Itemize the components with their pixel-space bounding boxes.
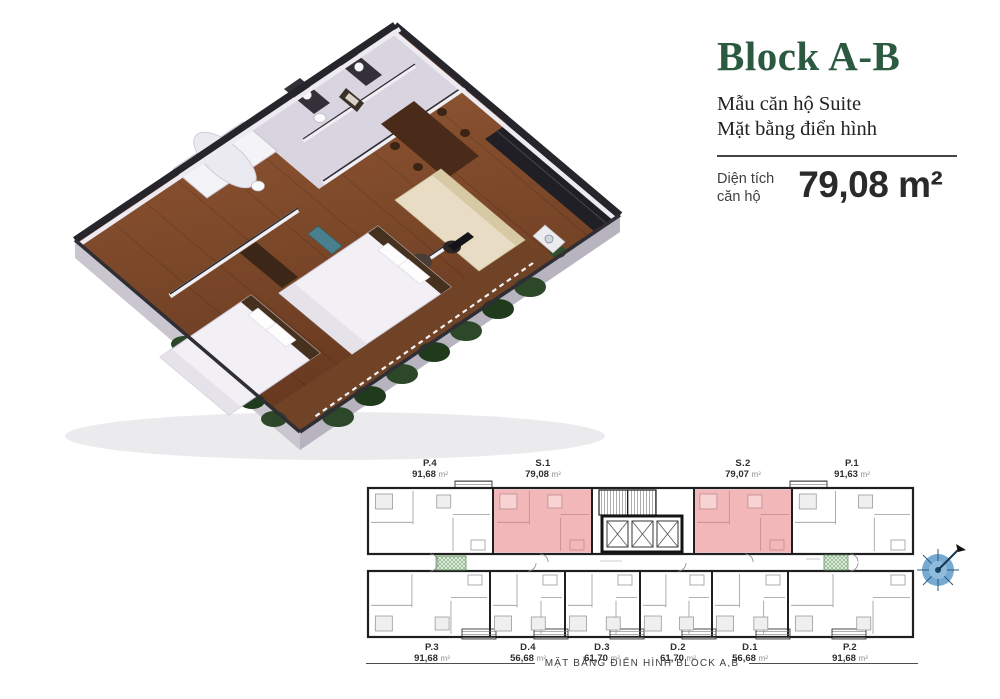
area-value: 79,08 m² — [798, 166, 942, 205]
brochure-page: Block A-B Mẫu căn hộ Suite Mặt bằng điển… — [0, 0, 1000, 699]
unit-label-p4: P.4 91,68 m² — [385, 459, 475, 481]
header: Block A-B Mẫu căn hộ Suite Mặt bằng điển… — [717, 36, 969, 206]
area-info: Diện tích căn hộ 79,08 m² — [717, 166, 969, 206]
plan-caption: MẶT BẰNG ĐIỂN HÌNH BLOCK A,B — [366, 658, 918, 669]
page-title: Block A-B — [717, 36, 969, 77]
area-label: Diện tích căn hộ — [717, 166, 774, 206]
caption-rule-right — [749, 663, 918, 664]
door-arcs — [430, 554, 858, 571]
unit-label-s1: S.1 79,08 m² — [498, 459, 588, 481]
caption-text: MẶT BẰNG ĐIỂN HÌNH BLOCK A,B — [545, 658, 740, 669]
apartment-3d-render — [65, 25, 620, 460]
unit-label-s2: S.2 79,07 m² — [698, 459, 788, 481]
subtitle-line-2: Mặt bằng điển hình — [717, 117, 969, 142]
stairwell — [599, 490, 656, 515]
elevator-core — [602, 516, 682, 552]
corridor-marks — [600, 559, 820, 561]
compass-rose-icon — [917, 544, 966, 591]
unit-label-p1: P.1 91,63 m² — [807, 459, 897, 481]
header-divider — [717, 155, 957, 157]
corridor-planter-hatch — [436, 556, 466, 570]
corridor-planter-hatch — [824, 555, 848, 570]
floorplan-drawing — [368, 481, 913, 639]
subtitle-line-1: Mẫu căn hộ Suite — [717, 92, 969, 117]
caption-rule-left — [366, 663, 535, 664]
